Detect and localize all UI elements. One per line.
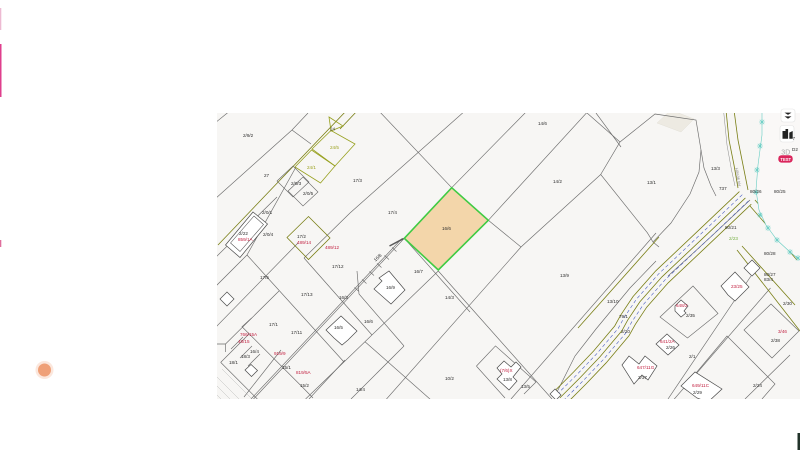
- svg-text:17/2: 17/2: [297, 234, 306, 239]
- svg-text:23/25: 23/25: [731, 284, 743, 289]
- svg-text:13/8: 13/8: [503, 377, 512, 382]
- svg-text:16/5: 16/5: [334, 325, 343, 330]
- svg-text:17/1: 17/1: [269, 322, 278, 327]
- svg-text:18/3: 18/3: [241, 354, 250, 359]
- svg-text:2/38: 2/38: [771, 338, 780, 343]
- svg-text:2/20: 2/20: [621, 329, 630, 334]
- svg-text:16/6: 16/6: [364, 319, 373, 324]
- svg-text:2/26: 2/26: [666, 345, 675, 350]
- svg-text:2/35: 2/35: [686, 313, 695, 318]
- svg-text:13/3: 13/3: [711, 166, 720, 171]
- svg-text:2/29: 2/29: [693, 390, 702, 395]
- svg-text:17/5: 17/5: [260, 275, 269, 280]
- svg-text:17/12: 17/12: [332, 264, 344, 269]
- svg-text:TEST: TEST: [780, 157, 791, 162]
- svg-text:649/11C: 649/11C: [692, 383, 710, 388]
- svg-text:2/1: 2/1: [689, 354, 696, 359]
- svg-text:83/4: 83/4: [764, 277, 773, 282]
- svg-text:16/6: 16/6: [442, 226, 451, 231]
- svg-text:17/3: 17/3: [353, 178, 362, 183]
- svg-text:489/12: 489/12: [325, 245, 339, 250]
- svg-text:14/6: 14/6: [538, 121, 547, 126]
- svg-text:647/11G: 647/11G: [637, 365, 655, 370]
- svg-text:2/23: 2/23: [729, 236, 738, 241]
- svg-text:2/0/5: 2/0/5: [303, 191, 314, 196]
- svg-text:17/13: 17/13: [301, 292, 313, 297]
- svg-text:16/9: 16/9: [386, 285, 395, 290]
- svg-text:80/26: 80/26: [750, 189, 762, 194]
- svg-text:13/5: 13/5: [521, 384, 530, 389]
- svg-text:17/4: 17/4: [388, 210, 397, 215]
- svg-text:14/3: 14/3: [445, 295, 454, 300]
- svg-text:18/1: 18/1: [229, 360, 238, 365]
- svg-text:24: 24: [330, 127, 336, 132]
- svg-text:2/0/3: 2/0/3: [291, 181, 302, 186]
- svg-text:14/4: 14/4: [356, 387, 365, 392]
- svg-text:648/2: 648/2: [676, 303, 688, 308]
- svg-text:13/9: 13/9: [560, 273, 569, 278]
- svg-text:(7/6)X: (7/6)X: [500, 368, 513, 373]
- svg-text:80/25: 80/25: [774, 189, 786, 194]
- svg-text:919/9: 919/9: [274, 351, 286, 356]
- svg-text:7: 7: [793, 136, 796, 141]
- svg-text:2/37: 2/37: [638, 375, 647, 380]
- svg-text:48/15: 48/15: [238, 339, 250, 344]
- svg-text:2/0/4: 2/0/4: [263, 232, 274, 237]
- svg-text:16/7: 16/7: [414, 269, 423, 274]
- svg-text:13/10: 13/10: [607, 299, 619, 304]
- svg-text:737: 737: [719, 186, 727, 191]
- svg-text:641/2A: 641/2A: [660, 339, 675, 344]
- svg-text:2/9/2: 2/9/2: [243, 133, 254, 138]
- svg-text:15/1: 15/1: [282, 365, 291, 370]
- svg-text:10/2: 10/2: [445, 376, 454, 381]
- svg-text:3/46: 3/46: [778, 329, 787, 334]
- svg-text:24/5: 24/5: [330, 145, 339, 150]
- svg-text:2/24: 2/24: [753, 383, 762, 388]
- svg-text:27: 27: [264, 173, 270, 178]
- svg-text:24/1: 24/1: [307, 165, 316, 170]
- svg-text:766/15A: 766/15A: [240, 332, 258, 337]
- svg-text:79/1: 79/1: [619, 314, 628, 319]
- svg-text:13/1: 13/1: [647, 180, 656, 185]
- svg-text:2/22: 2/22: [239, 231, 248, 236]
- svg-text:D2: D2: [792, 147, 798, 152]
- svg-text:859/1A: 859/1A: [238, 237, 253, 242]
- svg-text:17/11: 17/11: [291, 330, 303, 335]
- svg-text:15/2: 15/2: [300, 383, 309, 388]
- svg-text:16/3: 16/3: [339, 295, 348, 300]
- svg-text:489/14: 489/14: [297, 240, 311, 245]
- svg-text:14/2: 14/2: [553, 179, 562, 184]
- svg-text:80/21: 80/21: [725, 225, 737, 230]
- svg-text:2/30: 2/30: [783, 301, 792, 306]
- svg-text:819/5A: 819/5A: [296, 370, 311, 375]
- svg-text:16/4: 16/4: [250, 349, 259, 354]
- svg-text:80/28: 80/28: [764, 251, 776, 256]
- svg-text:2/0/1: 2/0/1: [262, 210, 273, 215]
